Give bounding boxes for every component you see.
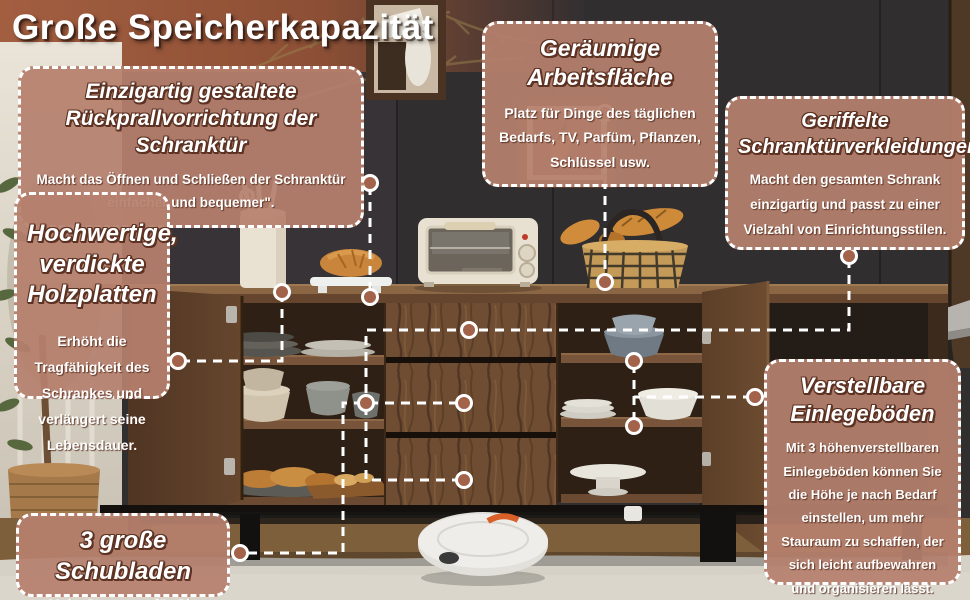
callout-wood-panels: Hochwertige, verdickte Holzplatten Erhöh… <box>14 192 170 399</box>
callout-wood-panels-body: Erhöht die Tragfähigkeit des Schrankes u… <box>27 329 157 458</box>
page-title: Große Speicherkapazität <box>12 8 434 48</box>
callout-door-rebound-title: Einzigartig gestaltete Rückprallvorricht… <box>31 79 351 160</box>
callout-fluted-doors-body: Macht den gesamten Schrank einzigartig u… <box>738 168 952 243</box>
callout-fluted-doors-title: Geriffelte Schranktürverkleidungen <box>738 109 952 160</box>
connector-drawers-callout <box>243 403 363 553</box>
callout-drawers-body: Mehr Stauraum für Sie <box>29 596 217 600</box>
callout-drawers: 3 große Schubladen Mehr Stauraum für Sie <box>16 513 230 597</box>
connector-drawer-bottom <box>366 406 461 480</box>
product-infographic: Große Speicherkapazität Einzigartig gest… <box>0 0 970 600</box>
callout-drawers-title: 3 große Schubladen <box>29 526 217 587</box>
callout-worktop: Geräumige Arbeitsfläche Platz für Dinge … <box>482 21 718 187</box>
callout-adjustable-shelves-title: Verstellbare Einlegeböden <box>777 372 948 428</box>
callout-fluted-doors: Geriffelte Schranktürverkleidungen Macht… <box>725 96 965 250</box>
callout-worktop-body: Platz für Dinge des täglichen Bedarfs, T… <box>495 101 705 175</box>
connector-wood-panels <box>181 295 282 361</box>
callout-adjustable-shelves: Verstellbare Einlegeböden Mit 3 höhenver… <box>764 359 961 585</box>
callout-worktop-title: Geräumige Arbeitsfläche <box>495 34 705 93</box>
callout-adjustable-shelves-body: Mit 3 höhenverstellbaren Einlegeböden kö… <box>777 436 948 600</box>
callout-wood-panels-title: Hochwertige, verdickte Holzplatten <box>27 219 157 311</box>
